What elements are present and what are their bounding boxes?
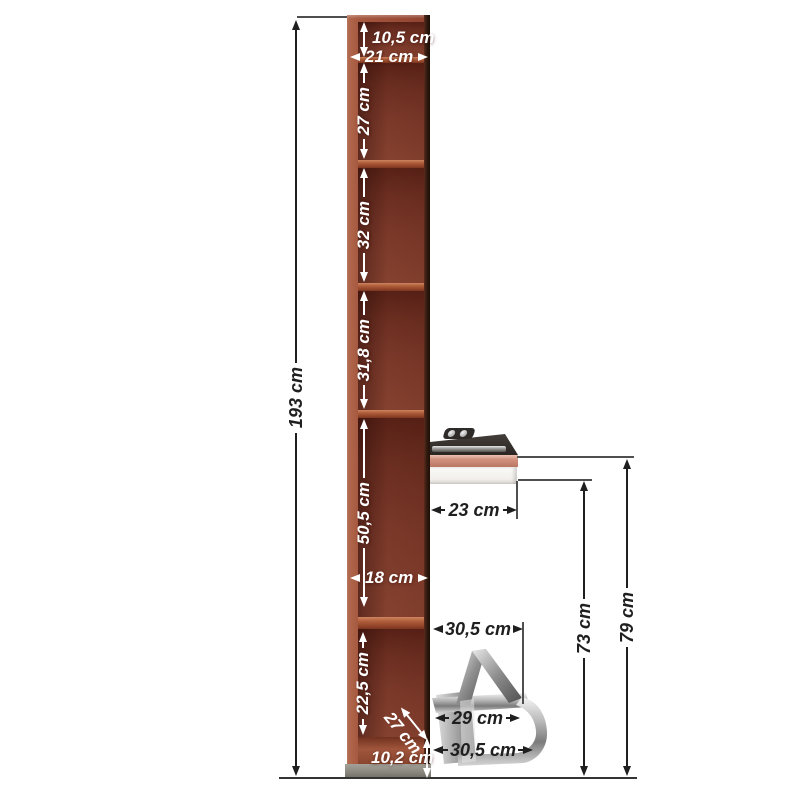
dim-desk-depth: 23 cm [431,500,517,520]
extension-line-79 [517,456,634,458]
dim-footrest-mid-width: 29 cm [435,708,520,728]
desk-unit [430,430,518,484]
dim-compartment-5: 22,5 cm [352,632,374,735]
dim-desk-top-height: 79 cm [616,459,638,776]
shelf-board-3 [358,410,424,418]
dim-top-inset-label: 10,5 cm [372,28,434,48]
dim-compartment-2: 32 cm [353,168,375,282]
furniture-dimension-diagram: 10,5 cm 21 cm 27 cm 32 cm 31,8 cm 50,5 c… [0,0,800,800]
dim-compartment-1: 27 cm [353,63,375,159]
dim-desk-clearance: 73 cm [573,481,595,776]
dim-inner-width-lower: 18 cm [350,568,427,588]
desk-edge-band [430,455,518,467]
dim-total-height: 193 cm [285,20,307,776]
shelf-board-4 [358,617,424,629]
dim-compartment-3: 31,8 cm [353,291,375,409]
dim-base-height-label: 10,2 cm [371,748,433,768]
dim-footrest-top-width: 30,5 cm [433,619,523,639]
shelf-board-2 [358,283,424,291]
desk-drawer-front [430,467,517,484]
desk-chrome-tray [432,446,506,452]
ground-line [279,777,637,779]
clipper-appliance [442,428,476,439]
shelf-board-1 [358,160,424,168]
extension-line-top [297,16,347,18]
dim-footrest-bottom-width: 30,5 cm [433,740,533,760]
